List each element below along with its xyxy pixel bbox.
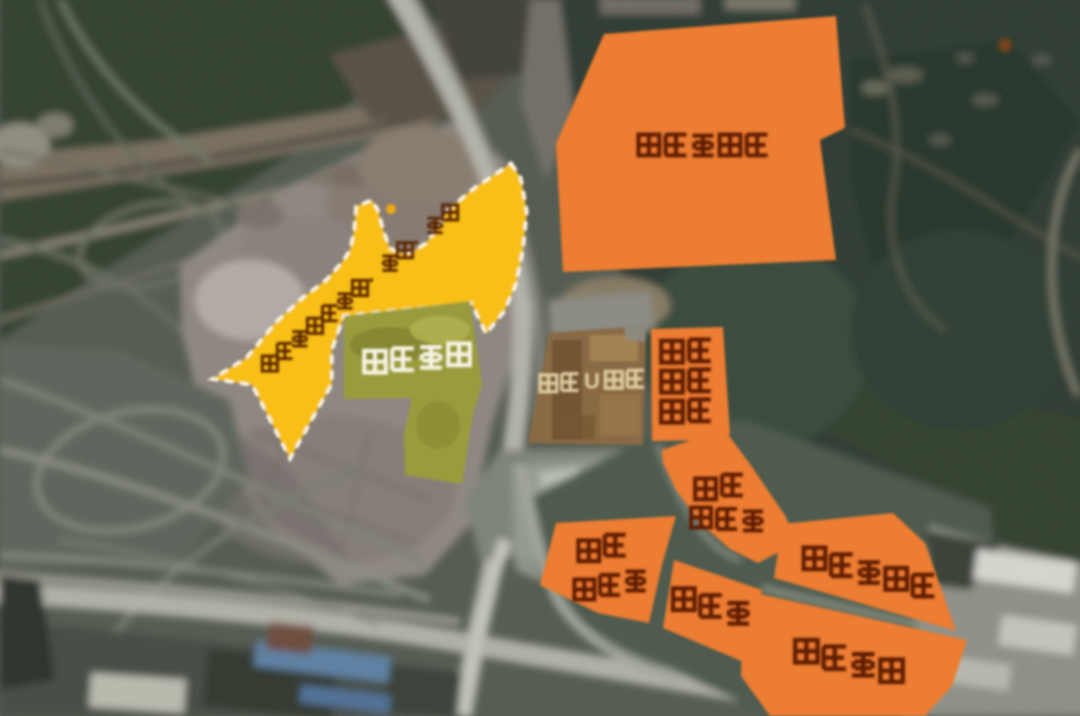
svg-text:U: U — [584, 369, 600, 394]
